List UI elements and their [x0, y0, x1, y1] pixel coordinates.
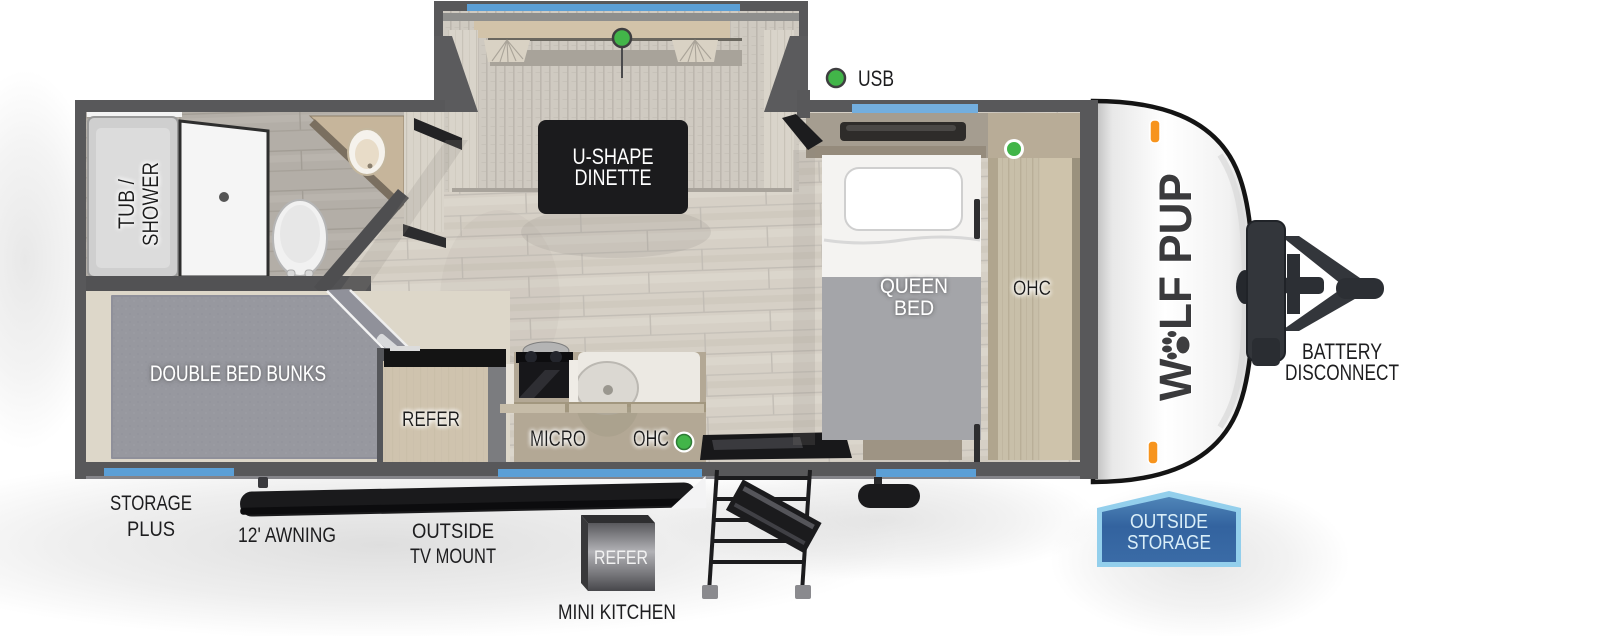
svg-text:PLUS: PLUS: [127, 518, 175, 541]
svg-text:MINI KITCHEN: MINI KITCHEN: [558, 601, 676, 624]
svg-text:TUB /: TUB /: [114, 178, 139, 229]
svg-text:STORAGE: STORAGE: [1127, 532, 1211, 554]
svg-text:DINETTE: DINETTE: [575, 165, 652, 190]
svg-text:SHOWER: SHOWER: [138, 162, 163, 246]
svg-text:OHC: OHC: [1013, 277, 1051, 300]
svg-text:QUEEN: QUEEN: [880, 275, 948, 298]
svg-text:BED: BED: [894, 297, 934, 320]
svg-text:TV MOUNT: TV MOUNT: [410, 545, 496, 568]
svg-text:USB: USB: [858, 66, 894, 91]
svg-text:REFER: REFER: [594, 548, 648, 569]
svg-text:OUTSIDE: OUTSIDE: [412, 520, 494, 543]
svg-text:REFER: REFER: [402, 408, 460, 431]
svg-text:STORAGE: STORAGE: [110, 492, 192, 515]
svg-text:LF PUP: LF PUP: [1150, 173, 1201, 330]
svg-text:MICRO: MICRO: [530, 426, 586, 451]
svg-text:W: W: [1150, 358, 1201, 401]
svg-text:OHC: OHC: [633, 426, 669, 451]
svg-text:DOUBLE BED BUNKS: DOUBLE BED BUNKS: [150, 361, 326, 386]
svg-text:12' AWNING: 12' AWNING: [238, 524, 336, 547]
svg-text:DISCONNECT: DISCONNECT: [1285, 360, 1399, 385]
svg-text:OUTSIDE: OUTSIDE: [1130, 511, 1208, 533]
